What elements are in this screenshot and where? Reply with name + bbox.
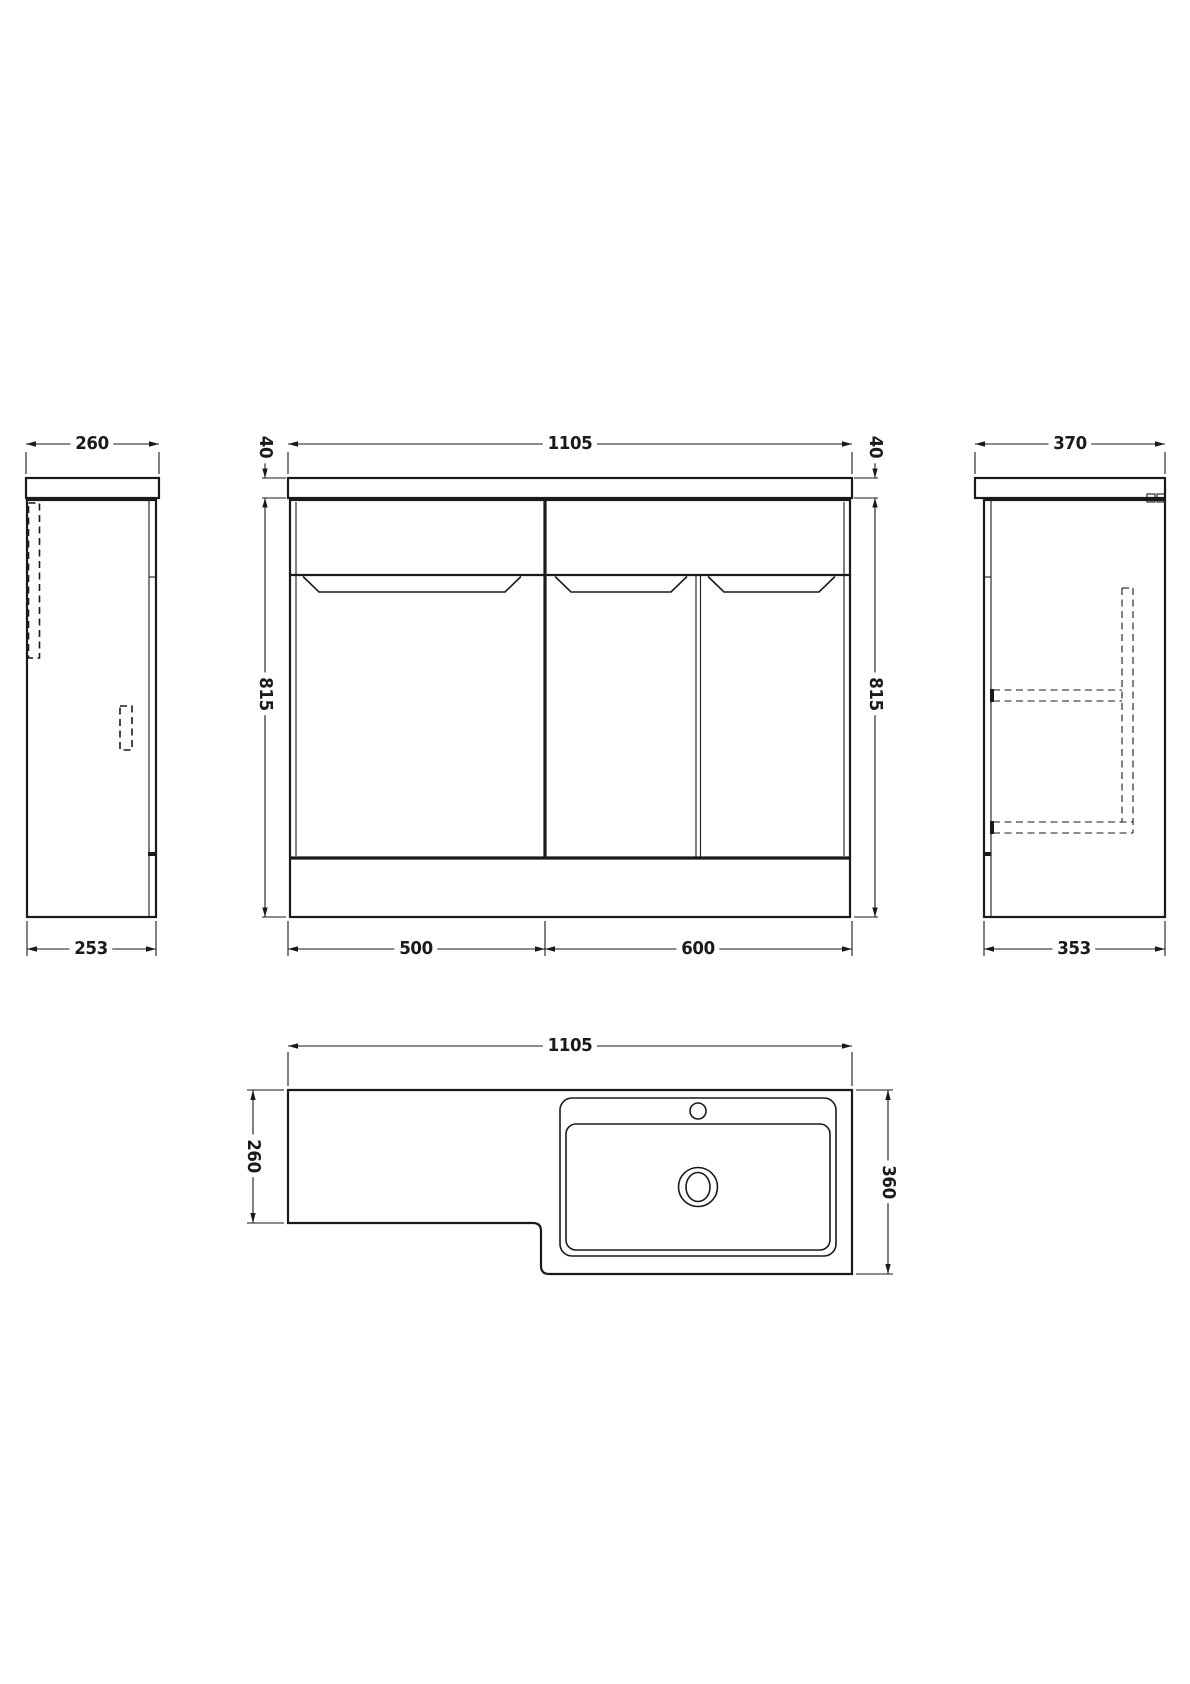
hidden-handle-dashed xyxy=(120,706,132,750)
dim-plan-depth-right-label: 360 xyxy=(879,1160,897,1203)
waste-outer xyxy=(679,1168,718,1207)
countertop-front xyxy=(288,478,852,498)
dim-front-thickness-left-label: 40 xyxy=(256,431,274,463)
cabinet-side-left xyxy=(27,500,156,917)
handle-recess-left-door xyxy=(303,577,521,593)
dim-front-width-label: 1105 xyxy=(543,435,597,453)
door-joint-thick-tick xyxy=(983,852,991,856)
dim-front-height-right-label: 815 xyxy=(866,672,884,715)
worktop-outline xyxy=(288,1090,852,1274)
basin-rim xyxy=(560,1098,836,1256)
drawing-linework xyxy=(0,0,1190,1684)
countertop-side-left xyxy=(26,478,159,498)
side-view-right xyxy=(975,441,1165,956)
dim-front-thickness-right-label: 40 xyxy=(866,431,884,463)
dim-front-height-left-label: 815 xyxy=(256,672,274,715)
technical-drawing-sheet: 260 253 1105 40 815 40 815 500 600 370 3… xyxy=(0,0,1190,1684)
handle-recess-middle-door xyxy=(555,577,687,593)
dim-front-sections-lines xyxy=(288,921,852,956)
dim-side-right-top-label: 370 xyxy=(1048,435,1091,453)
dim-front-section-right-label: 600 xyxy=(676,940,719,958)
countertop-side-right xyxy=(975,478,1165,498)
tap-hole xyxy=(690,1103,706,1119)
hidden-basin-and-shelf-dashed xyxy=(990,588,1133,834)
dim-side-left-bottom-label: 253 xyxy=(69,940,112,958)
cabinet-front xyxy=(290,500,850,917)
dim-plan-width-label: 1105 xyxy=(543,1037,597,1055)
dim-side-right-bottom-label: 353 xyxy=(1052,940,1095,958)
basin-bowl xyxy=(566,1124,830,1250)
door-joint-thick-tick xyxy=(148,852,156,856)
cabinet-side-right xyxy=(984,500,1165,917)
side-view-left xyxy=(26,441,159,956)
plan-view xyxy=(247,1043,893,1274)
dim-side-left-top-label: 260 xyxy=(70,435,113,453)
dim-plan-depth-left-label: 260 xyxy=(244,1134,262,1177)
dim-front-section-left-label: 500 xyxy=(394,940,437,958)
hidden-hinge-plate-dashed xyxy=(29,503,40,658)
front-view xyxy=(262,438,878,956)
waste-inner xyxy=(686,1173,710,1202)
handle-recess-right-door xyxy=(708,577,835,593)
